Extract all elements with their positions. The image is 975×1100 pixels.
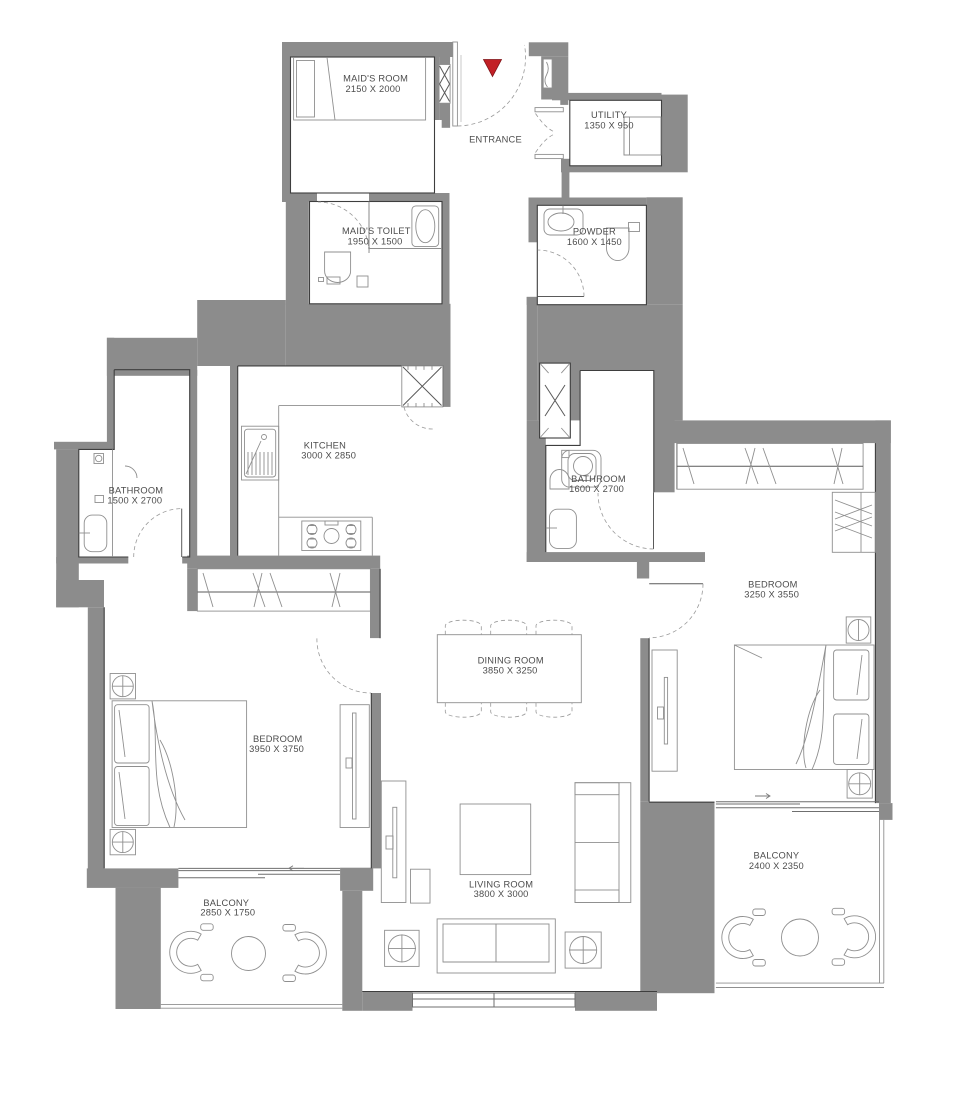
svg-text:3000 X 2850: 3000 X 2850 (301, 451, 356, 461)
svg-text:BATHROOM: BATHROOM (109, 485, 164, 495)
svg-text:3800 X 3000: 3800 X 3000 (474, 889, 529, 899)
svg-text:2150 X 2000: 2150 X 2000 (346, 84, 401, 94)
svg-text:MAID'S TOILET: MAID'S TOILET (342, 226, 411, 236)
svg-text:DINING ROOM: DINING ROOM (478, 656, 544, 666)
svg-text:UTILITY: UTILITY (591, 110, 627, 120)
svg-text:BEDROOM: BEDROOM (253, 734, 302, 744)
svg-text:BEDROOM: BEDROOM (748, 580, 797, 590)
svg-text:MAID'S ROOM: MAID'S ROOM (343, 74, 408, 84)
svg-text:3950 X 3750: 3950 X 3750 (249, 744, 304, 754)
svg-text:1350 X 950: 1350 X 950 (584, 121, 634, 131)
svg-text:BALCONY: BALCONY (753, 850, 799, 860)
svg-text:3250 X 3550: 3250 X 3550 (744, 590, 799, 600)
svg-text:3850 X 3250: 3850 X 3250 (483, 665, 538, 675)
svg-text:1600 X 2700: 1600 X 2700 (569, 484, 624, 494)
svg-text:POWDER: POWDER (573, 227, 616, 237)
svg-text:ENTRANCE: ENTRANCE (469, 135, 522, 145)
svg-text:1950 X 1500: 1950 X 1500 (348, 237, 403, 247)
svg-text:BATHROOM: BATHROOM (571, 474, 626, 484)
svg-text:KITCHEN: KITCHEN (304, 440, 346, 450)
svg-text:1500 X 2700: 1500 X 2700 (107, 495, 162, 505)
svg-text:1600 X 1450: 1600 X 1450 (567, 237, 622, 247)
svg-text:2850 X 1750: 2850 X 1750 (200, 907, 255, 917)
svg-text:2400 X 2350: 2400 X 2350 (749, 861, 804, 871)
